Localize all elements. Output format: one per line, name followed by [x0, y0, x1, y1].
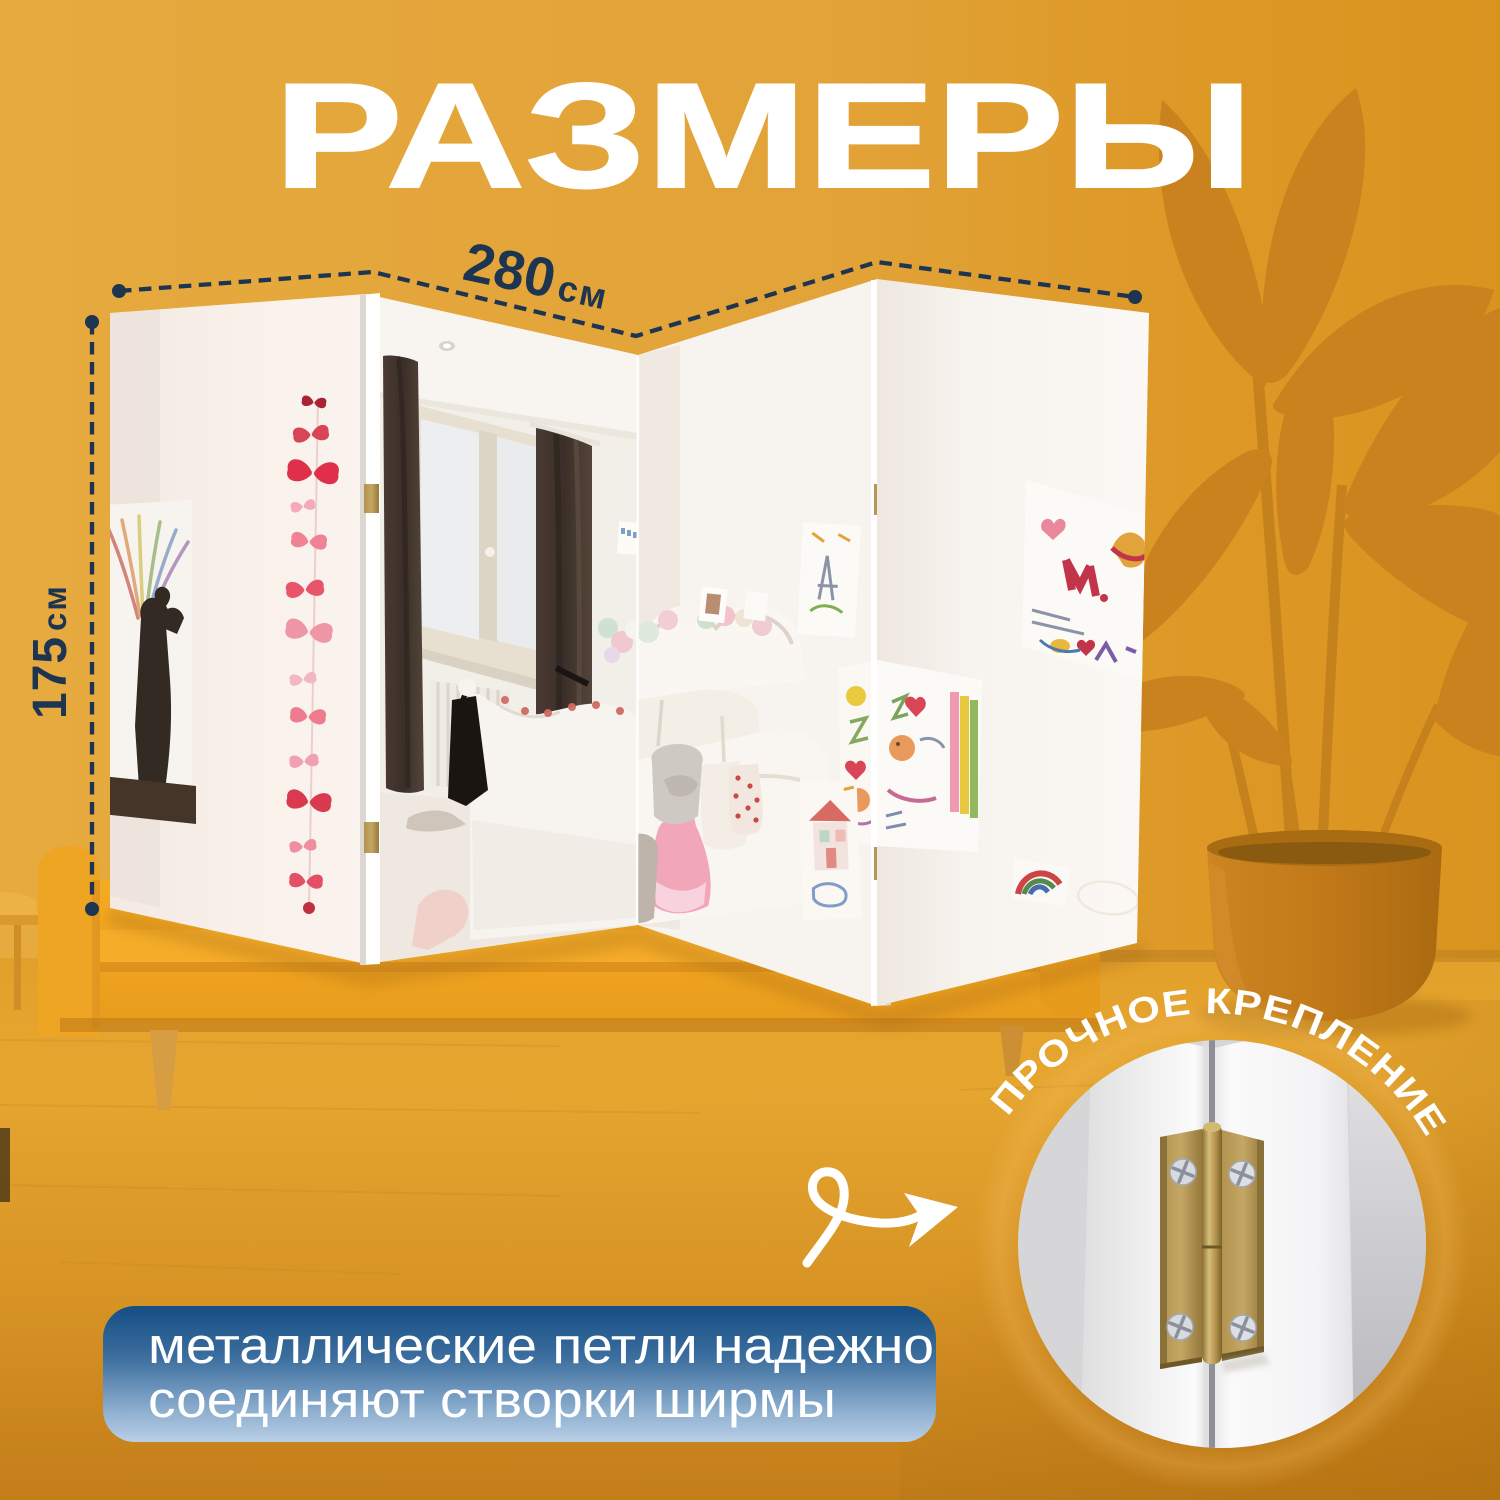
svg-text:металлические петли надежно: металлические петли надежно: [148, 1317, 934, 1374]
svg-text:см: см: [36, 584, 73, 631]
svg-text:175: 175: [24, 636, 77, 719]
svg-text:соединяют створки ширмы: соединяют створки ширмы: [148, 1371, 836, 1428]
svg-text:РАЗМЕРЫ: РАЗМЕРЫ: [274, 52, 1253, 219]
